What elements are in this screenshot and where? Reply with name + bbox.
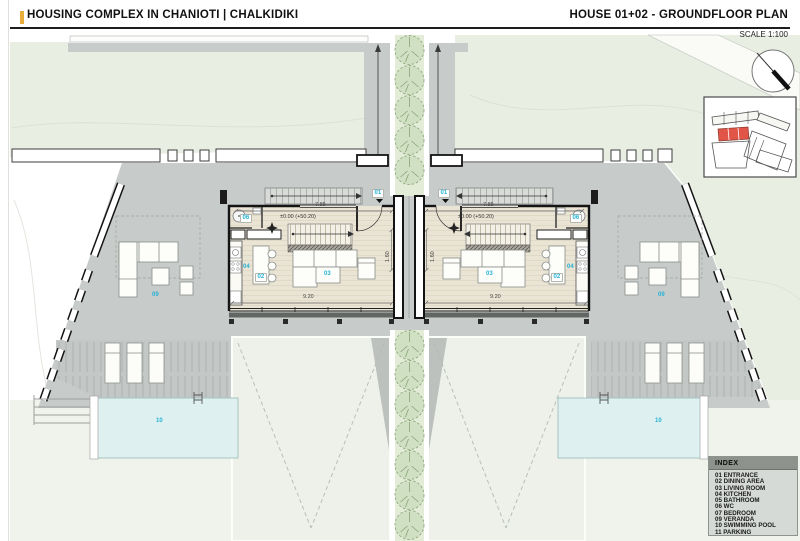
index-item: 11 PARKING bbox=[715, 530, 797, 536]
room-label-veranda-left: 09 bbox=[152, 292, 159, 299]
column bbox=[591, 190, 598, 204]
swimming-pool-right bbox=[558, 392, 708, 459]
room-label-entrance-right: 01 bbox=[438, 189, 450, 198]
sheet-title: HOUSE 01+02 - GROUNDFLOOR PLAN bbox=[570, 9, 788, 21]
column bbox=[220, 190, 227, 204]
room-label-pool-right: 10 bbox=[655, 418, 662, 425]
dim-passage-right: 1.60 bbox=[430, 251, 436, 262]
index-title: INDEX bbox=[709, 457, 797, 470]
key-plan bbox=[704, 97, 796, 177]
room-label-dining-left: 02 bbox=[255, 273, 267, 282]
scale-label: SCALE 1:100 bbox=[740, 30, 788, 39]
exterior-stair-right bbox=[456, 188, 553, 204]
room-label-living-left: 03 bbox=[324, 271, 331, 278]
room-label-dining-right: 02 bbox=[551, 273, 563, 282]
index-legend: INDEX 01 ENTRANCE 02 DINING AREA 03 LIVI… bbox=[708, 456, 798, 536]
drawing-sheet: HOUSING COMPLEX IN CHANIOTI | CHALKIDIKI… bbox=[0, 0, 800, 541]
title-accent-bar bbox=[20, 11, 24, 24]
exterior-stair-left bbox=[265, 188, 362, 204]
tree-strip-bottom bbox=[390, 330, 429, 541]
garden-wall-left bbox=[12, 149, 366, 162]
dim-bottom-left: 9.20 bbox=[303, 294, 314, 300]
project-title: HOUSING COMPLEX IN CHANIOTI | CHALKIDIKI bbox=[27, 9, 298, 21]
dim-passage-left: 1.60 bbox=[385, 251, 391, 262]
sheet-edge-line bbox=[8, 0, 9, 541]
room-label-wc-left: 06 bbox=[240, 214, 252, 223]
party-walls bbox=[394, 196, 424, 318]
dim-top-left: 7.85 bbox=[315, 202, 326, 208]
room-label-entrance-left: 01 bbox=[372, 189, 384, 198]
dim-top-right: 7.85 bbox=[483, 202, 494, 208]
sun-loungers-right bbox=[645, 343, 704, 383]
swimming-pool-left bbox=[90, 392, 238, 459]
grass-area-top-left bbox=[10, 42, 367, 157]
elevation-label-left: ±0.00 (+50.20) bbox=[280, 214, 316, 220]
parking-left bbox=[232, 337, 390, 541]
header-rule bbox=[10, 27, 790, 29]
key-plan-highlight bbox=[718, 127, 749, 141]
sun-loungers-left bbox=[105, 343, 164, 383]
elevation-label-right: ±0.00 (+50.20) bbox=[458, 214, 494, 220]
room-label-veranda-right: 09 bbox=[658, 292, 665, 299]
room-label-living-right: 03 bbox=[486, 271, 493, 278]
room-label-pool-left: 10 bbox=[156, 418, 163, 425]
room-label-kitchen-right: 04 bbox=[567, 264, 574, 271]
north-compass-icon bbox=[752, 50, 794, 92]
room-label-wc-right: 06 bbox=[570, 214, 582, 223]
house-right bbox=[424, 205, 589, 324]
floor-plan-drawing bbox=[0, 0, 800, 541]
entry-planter-right bbox=[431, 155, 462, 166]
deck-left bbox=[56, 340, 229, 397]
room-label-kitchen-left: 04 bbox=[243, 264, 250, 271]
dim-bottom-right: 9.20 bbox=[490, 294, 501, 300]
entry-planter-left bbox=[357, 155, 388, 166]
house-left bbox=[229, 205, 394, 324]
